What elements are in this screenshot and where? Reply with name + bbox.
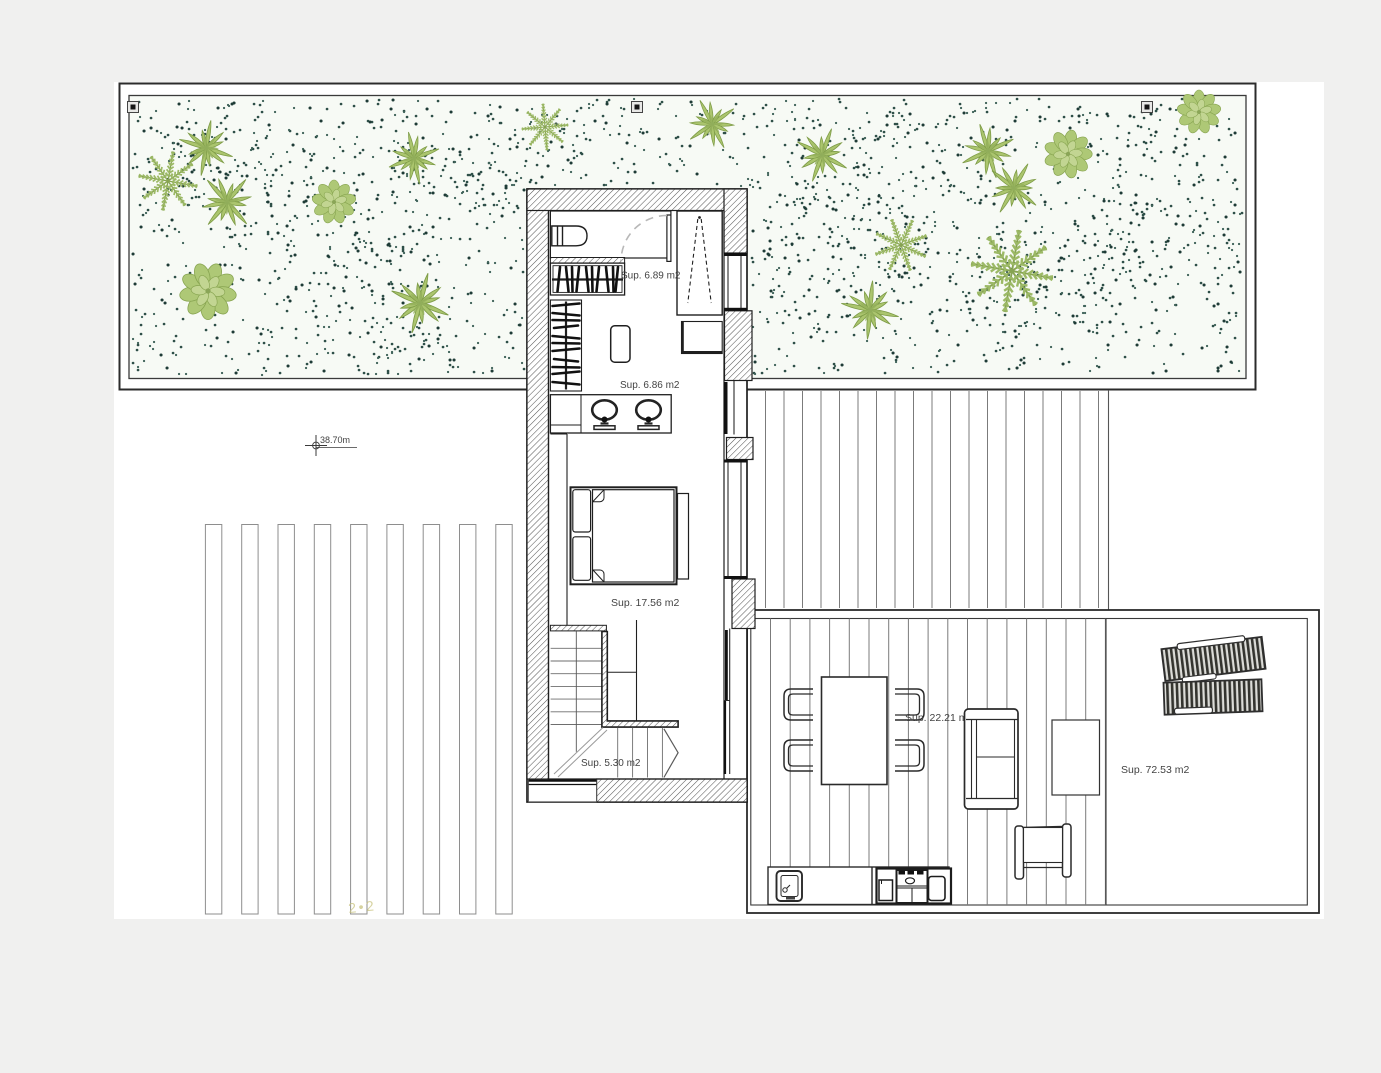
svg-text:Sup. 6.86 m2: Sup. 6.86 m2 [620,380,680,391]
svg-text:Sup. 17.56 m2: Sup. 17.56 m2 [611,597,679,609]
svg-text:Sup. 22.21 m2: Sup. 22.21 m2 [905,712,973,724]
svg-text:38.70m: 38.70m [320,435,350,445]
svg-text:Sup. 5.30 m2: Sup. 5.30 m2 [581,758,641,769]
svg-text:Sup. 6.89 m2: Sup. 6.89 m2 [621,271,681,282]
svg-text:Sup. 72.53 m2: Sup. 72.53 m2 [1121,764,1189,776]
svg-text:2•2: 2•2 [348,897,378,916]
